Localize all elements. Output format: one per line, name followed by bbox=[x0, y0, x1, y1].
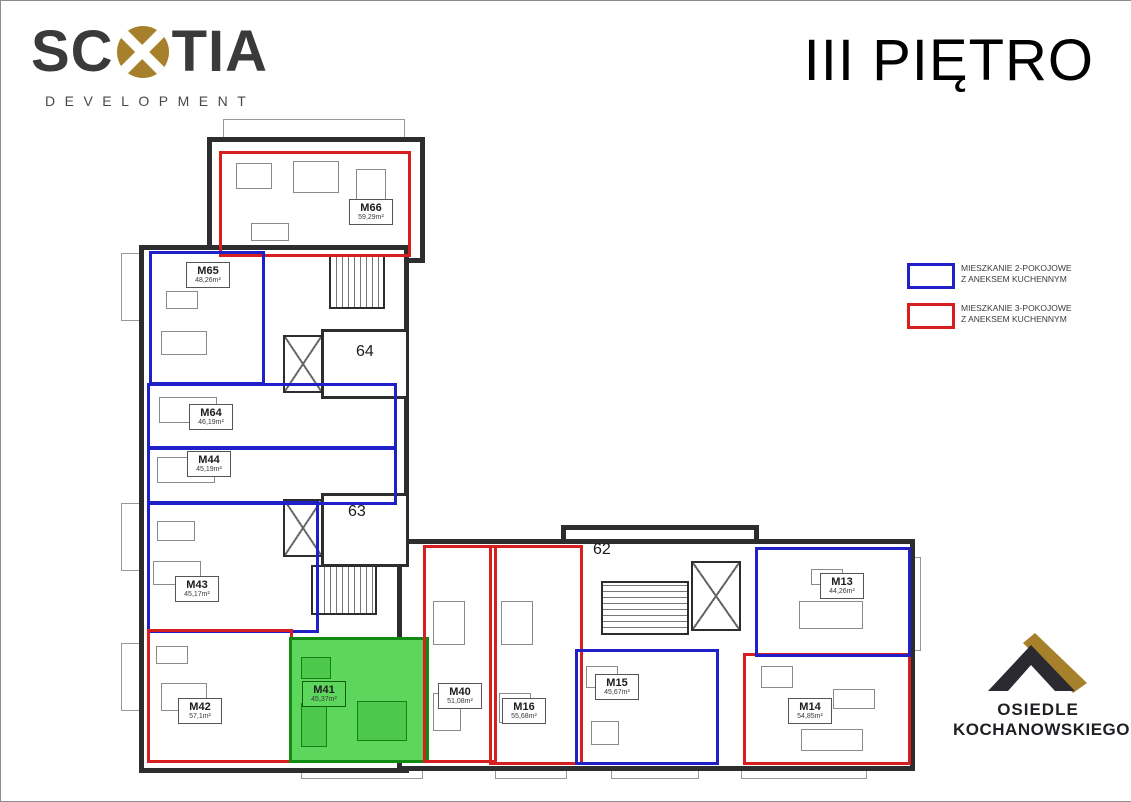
legend-2room-line1: MIESZKANIE 2-POKOJOWE bbox=[961, 263, 1072, 274]
legend-label-2room: MIESZKANIE 2-POKOJOWE Z ANEKSEM KUCHENNY… bbox=[961, 263, 1072, 286]
unit-area: 44,26m² bbox=[825, 588, 859, 596]
roof-icon bbox=[983, 633, 1093, 695]
furniture-block bbox=[357, 701, 407, 741]
legend-3room-line2: Z ANEKSEM KUCHENNYM bbox=[961, 314, 1072, 325]
unit-area: 59,29m² bbox=[354, 214, 388, 222]
estate-name-line1: OSIEDLE bbox=[953, 700, 1123, 720]
unit-name: M42 bbox=[183, 701, 217, 713]
scotia-x-icon bbox=[117, 26, 169, 78]
furniture-block bbox=[157, 521, 195, 541]
elevator-shaft bbox=[691, 561, 741, 631]
unit-name: M43 bbox=[180, 579, 214, 591]
furniture-block bbox=[301, 703, 327, 747]
unit-area: 48,26m² bbox=[191, 277, 225, 285]
furniture-block bbox=[761, 666, 793, 688]
unit-label-m64: M64 46,19m² bbox=[189, 404, 233, 430]
unit-area: 51,08m² bbox=[443, 698, 477, 706]
unit-m16[interactable] bbox=[489, 545, 583, 765]
staircase bbox=[329, 255, 385, 309]
brand-text-right: TIA bbox=[172, 23, 268, 81]
furniture-block bbox=[433, 601, 465, 645]
unit-label-m42: M42 57,1m² bbox=[178, 698, 222, 724]
legend-swatch-2room bbox=[907, 263, 955, 289]
legend-3room-line1: MIESZKANIE 3-POKOJOWE bbox=[961, 303, 1072, 314]
stairwell-number-62: 62 bbox=[593, 541, 611, 559]
furniture-block bbox=[236, 163, 272, 189]
unit-name: M40 bbox=[443, 686, 477, 698]
unit-label-m40: M40 51,08m² bbox=[438, 683, 482, 709]
furniture-block bbox=[799, 601, 863, 629]
brand-text-left: SC bbox=[31, 23, 114, 81]
unit-name: M15 bbox=[600, 677, 634, 689]
unit-name: M44 bbox=[192, 454, 226, 466]
furniture-block bbox=[591, 721, 619, 745]
unit-label-m13: M13 44,26m² bbox=[820, 573, 864, 599]
estate-name-line2: KOCHANOWSKIEGO bbox=[953, 720, 1123, 740]
unit-label-m14: M14 54,85m² bbox=[788, 698, 832, 724]
floorplan-page: SC TIA DEVELOPMENT III PIĘTRO MIESZKANIE… bbox=[0, 0, 1131, 802]
furniture-block bbox=[161, 331, 207, 355]
scotia-logo: SC TIA bbox=[31, 23, 268, 81]
page-title: III PIĘTRO bbox=[804, 27, 1094, 94]
staircase bbox=[601, 581, 689, 635]
furniture-block bbox=[301, 657, 331, 679]
unit-area: 46,19m² bbox=[194, 419, 228, 427]
legend-swatch-3room bbox=[907, 303, 955, 329]
furniture-block bbox=[801, 729, 863, 751]
furniture-block bbox=[156, 646, 188, 664]
unit-area: 45,17m² bbox=[180, 591, 214, 599]
unit-label-m44: M44 45,19m² bbox=[187, 451, 231, 477]
brand-subtitle: DEVELOPMENT bbox=[45, 93, 255, 109]
estate-logo: OSIEDLE KOCHANOWSKIEGO bbox=[953, 633, 1123, 740]
unit-name: M13 bbox=[825, 576, 859, 588]
unit-name: M64 bbox=[194, 407, 228, 419]
unit-label-m65: M65 48,26m² bbox=[186, 262, 230, 288]
furniture-block bbox=[501, 601, 533, 645]
legend-2room-line2: Z ANEKSEM KUCHENNYM bbox=[961, 274, 1072, 285]
unit-label-m15: M15 45,67m² bbox=[595, 674, 639, 700]
unit-name: M41 bbox=[307, 684, 341, 696]
unit-area: 57,1m² bbox=[183, 713, 217, 721]
furniture-block bbox=[833, 689, 875, 709]
unit-label-m16: M16 55,68m² bbox=[502, 698, 546, 724]
unit-label-m41: M41 45,37m² bbox=[302, 681, 346, 707]
furniture-block bbox=[166, 291, 198, 309]
unit-area: 55,68m² bbox=[507, 713, 541, 721]
legend-label-3room: MIESZKANIE 3-POKOJOWE Z ANEKSEM KUCHENNY… bbox=[961, 303, 1072, 326]
unit-label-m66: M66 59,29m² bbox=[349, 199, 393, 225]
unit-name: M16 bbox=[507, 701, 541, 713]
unit-label-m43: M43 45,17m² bbox=[175, 576, 219, 602]
unit-name: M66 bbox=[354, 202, 388, 214]
unit-area: 45,19m² bbox=[192, 466, 226, 474]
unit-area: 45,37m² bbox=[307, 696, 341, 704]
unit-name: M14 bbox=[793, 701, 827, 713]
furniture-block bbox=[251, 223, 289, 241]
unit-area: 45,67m² bbox=[600, 689, 634, 697]
staircase bbox=[311, 565, 377, 615]
unit-area: 54,85m² bbox=[793, 713, 827, 721]
stairwell-number-64: 64 bbox=[356, 343, 374, 361]
unit-name: M65 bbox=[191, 265, 225, 277]
furniture-block bbox=[293, 161, 339, 193]
stairwell-number-63: 63 bbox=[348, 503, 366, 521]
